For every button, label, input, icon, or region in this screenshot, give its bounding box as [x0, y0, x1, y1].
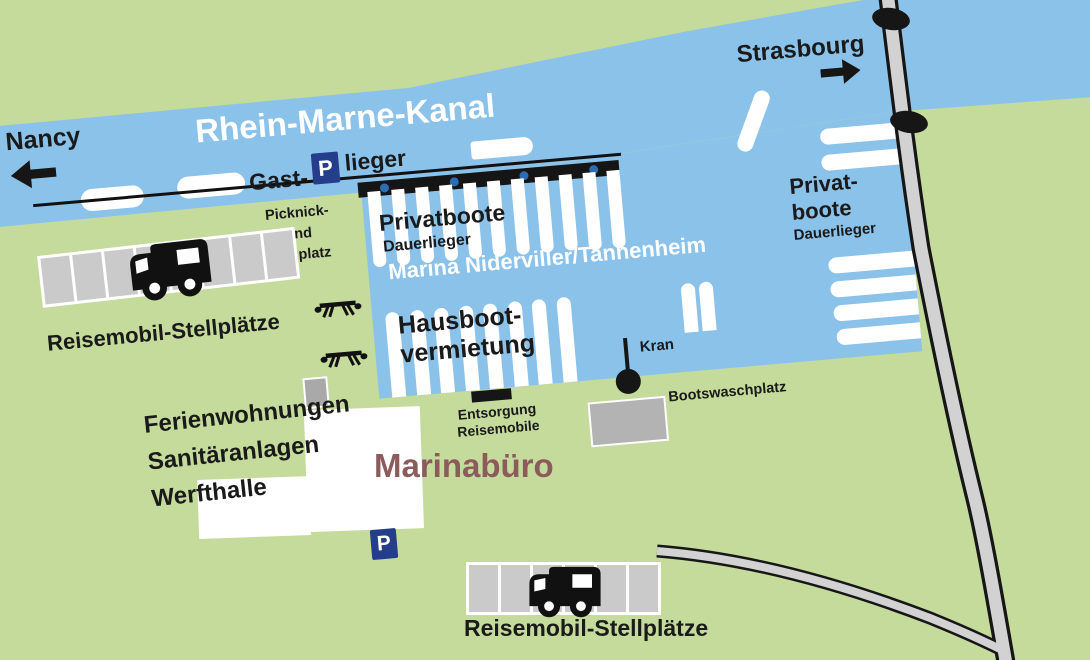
picnic-table-icon [314, 295, 362, 321]
bridge-marker [871, 5, 912, 33]
parking-cell [40, 256, 74, 305]
parking-cell [263, 230, 297, 279]
parking-cell [72, 252, 106, 301]
marina-site-map: Nancy Strasbourg Rhein-Marne-Kanal Marin… [0, 0, 1090, 660]
buildings-label: Ferienwohnungen Sanitäranlagen Werfthall… [142, 385, 359, 517]
access-road-surface [657, 551, 1004, 651]
rv-sites-bottom-label: Reisemobil-Stellplätze [464, 616, 708, 641]
parking-cell [231, 234, 265, 283]
rv-parking-row-bottom [466, 562, 661, 615]
picnic-table-icon [320, 345, 368, 371]
parking-sign: P [370, 528, 399, 560]
rv-icon [120, 232, 220, 302]
rv-icon [522, 562, 608, 616]
parking-cell [469, 565, 498, 612]
parking-cell [629, 565, 658, 612]
parking-sign-letter: P [376, 531, 392, 556]
marina-office-label: Marinabüro [374, 448, 554, 484]
access-road [657, 551, 1004, 651]
